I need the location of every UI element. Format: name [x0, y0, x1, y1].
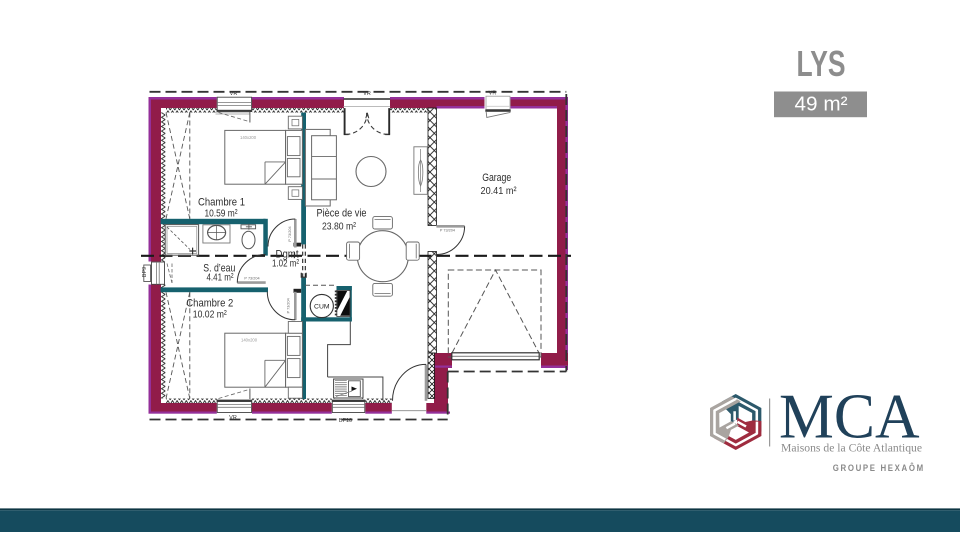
- svg-text:Chambre 2: Chambre 2: [186, 298, 233, 310]
- svg-text:BF10: BF10: [339, 418, 352, 424]
- svg-text:Chambre 1: Chambre 1: [198, 197, 245, 209]
- svg-text:Garage: Garage: [482, 172, 511, 184]
- svg-text:Maisons de la Côte Atlantique: Maisons de la Côte Atlantique: [781, 441, 922, 455]
- svg-text:23.80 m²: 23.80 m²: [322, 222, 357, 233]
- svg-text:P 73/204: P 73/204: [287, 298, 291, 313]
- svg-text:CUM: CUM: [314, 303, 330, 310]
- svg-text:VR: VR: [229, 415, 237, 421]
- svg-text:P 73/204: P 73/204: [440, 229, 455, 233]
- svg-text:P 73/204: P 73/204: [288, 226, 292, 241]
- svg-text:10.59 m²: 10.59 m²: [205, 209, 238, 220]
- svg-text:GROUPE HEXAÔM: GROUPE HEXAÔM: [833, 462, 925, 474]
- svg-text:140x200: 140x200: [240, 135, 257, 140]
- svg-text:P 73/204: P 73/204: [244, 277, 259, 281]
- svg-text:LYS: LYS: [797, 43, 846, 84]
- svg-text:49 m²: 49 m²: [795, 93, 848, 116]
- svg-text:140x200: 140x200: [241, 338, 258, 343]
- svg-text:10.02 m²: 10.02 m²: [193, 310, 228, 321]
- svg-text:Pièce de vie: Pièce de vie: [317, 208, 367, 220]
- svg-text:BP9: BP9: [142, 267, 148, 277]
- svg-text:4.41 m²: 4.41 m²: [207, 273, 234, 284]
- svg-text:20.41 m²: 20.41 m²: [481, 186, 518, 197]
- svg-text:1.02 m²: 1.02 m²: [272, 259, 299, 270]
- svg-text:VR: VR: [489, 91, 497, 97]
- svg-text:VR: VR: [363, 91, 371, 97]
- svg-text:VR: VR: [230, 91, 238, 97]
